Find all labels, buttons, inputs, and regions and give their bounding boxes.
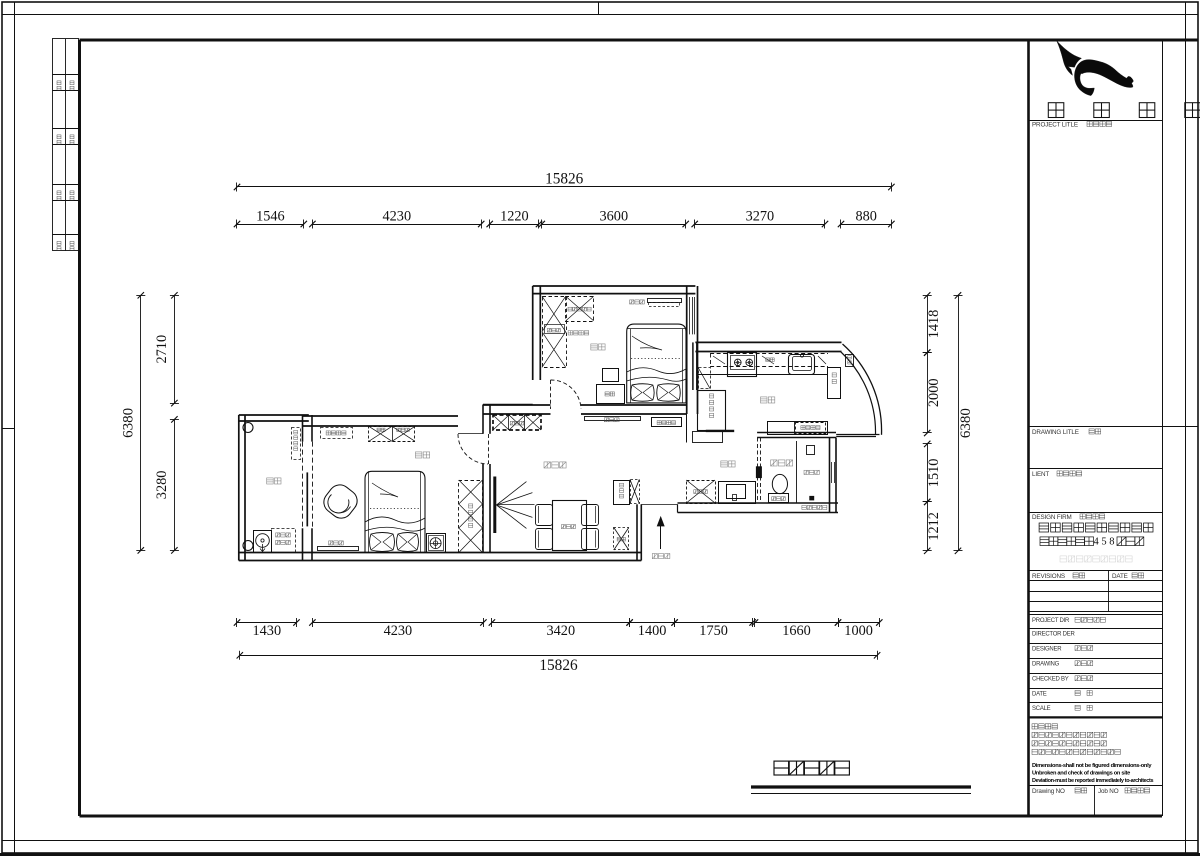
svg-text:PROJECT LITLE: PROJECT LITLE (1032, 122, 1078, 129)
svg-text:1510: 1510 (926, 459, 942, 488)
svg-text:DATE: DATE (1112, 573, 1128, 580)
svg-text:1660: 1660 (782, 623, 811, 639)
svg-text:CHECKED BY: CHECKED BY (1032, 677, 1069, 683)
svg-text:3600: 3600 (600, 209, 629, 225)
svg-text:DRAWING LITLE: DRAWING LITLE (1032, 429, 1079, 436)
svg-text:1000: 1000 (844, 623, 873, 639)
svg-text:2000: 2000 (926, 379, 942, 408)
svg-text:DESIGN FIRM: DESIGN FIRM (1032, 514, 1072, 521)
svg-text:Drawing NO: Drawing NO (1032, 788, 1065, 795)
svg-text:DRAWING: DRAWING (1032, 662, 1060, 668)
svg-text:1400: 1400 (638, 623, 667, 639)
svg-text:4230: 4230 (384, 623, 413, 639)
svg-text:1546: 1546 (256, 209, 285, 225)
svg-text:Dimensions-shall not be figure: Dimensions-shall not be figured dimensio… (1032, 763, 1152, 769)
svg-text:REVISIONS: REVISIONS (1032, 573, 1065, 580)
svg-text:Deviation-must be reported imm: Deviation-must be reported immediately t… (1032, 778, 1153, 784)
svg-text:1430: 1430 (253, 623, 282, 639)
svg-text:1750: 1750 (699, 623, 728, 639)
svg-text:SCALE: SCALE (1032, 706, 1051, 712)
svg-text:LIENT: LIENT (1032, 471, 1049, 478)
svg-text:6380: 6380 (958, 408, 974, 438)
svg-text:DESIGNER: DESIGNER (1032, 647, 1062, 653)
svg-text:1220: 1220 (500, 209, 529, 225)
svg-text:2710: 2710 (154, 335, 170, 364)
svg-text:Job NO: Job NO (1098, 788, 1119, 795)
svg-text:3280: 3280 (154, 471, 170, 500)
svg-text:Unbroken and check of drawings: Unbroken and check of drawings on site (1032, 771, 1130, 777)
svg-text:3420: 3420 (547, 623, 576, 639)
svg-text:15826: 15826 (545, 171, 584, 188)
svg-text:3270: 3270 (746, 209, 775, 225)
svg-text:DATE: DATE (1032, 691, 1047, 697)
svg-text:15826: 15826 (539, 657, 578, 674)
svg-text:1418: 1418 (926, 310, 942, 339)
svg-text:PROJECT DIR: PROJECT DIR (1032, 618, 1070, 624)
svg-text:DIRECTOR DER: DIRECTOR DER (1032, 632, 1075, 638)
svg-text:880: 880 (855, 209, 876, 225)
svg-text:6380: 6380 (120, 408, 136, 438)
svg-text:1212: 1212 (926, 512, 942, 541)
svg-text:4230: 4230 (383, 209, 412, 225)
svg-text:4 5 8: 4 5 8 (1094, 537, 1115, 548)
